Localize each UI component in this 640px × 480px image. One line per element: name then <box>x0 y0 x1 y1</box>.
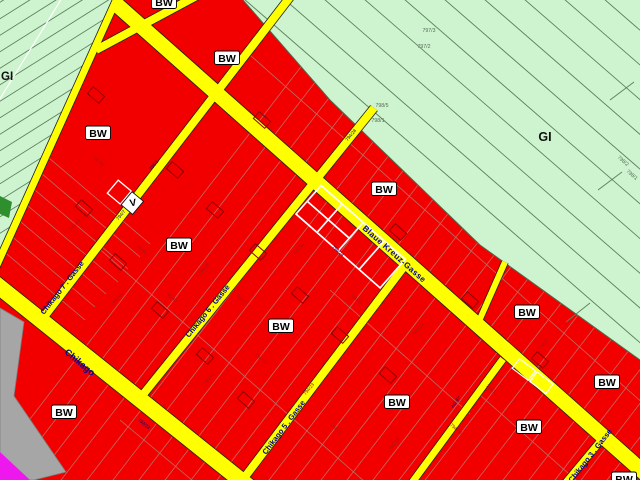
parcel-number: 797/3 <box>423 28 436 34</box>
bw-zone-label: BW <box>52 405 77 419</box>
map-canvas[interactable]: V Blaue Kreuz-Gasse Chikago Chikago 7 . … <box>0 0 640 480</box>
svg-text:BW: BW <box>55 407 73 419</box>
svg-text:BW: BW <box>388 397 406 409</box>
svg-text:BW: BW <box>155 0 173 9</box>
bw-zone-label: BW <box>385 395 410 409</box>
bw-zone-label: BW <box>215 51 240 65</box>
svg-text:BW: BW <box>218 53 236 65</box>
bw-zone-label: BW <box>269 319 294 333</box>
gi-zone-label-left: GI <box>1 71 13 83</box>
svg-text:BW: BW <box>598 377 616 389</box>
map-viewport[interactable]: V Blaue Kreuz-Gasse Chikago Chikago 7 . … <box>0 0 640 480</box>
svg-text:BW: BW <box>375 184 393 196</box>
bw-zone-label: BW <box>152 0 177 9</box>
svg-text:BW: BW <box>272 321 290 333</box>
svg-text:BW: BW <box>170 240 188 252</box>
parcel-number: 797/2 <box>418 44 431 50</box>
parcel-number: 798/5 <box>376 103 389 109</box>
bw-zone-label: BW <box>372 182 397 196</box>
svg-text:BW: BW <box>520 422 538 434</box>
svg-text:BW: BW <box>615 474 633 480</box>
bw-zone-label: BW <box>167 238 192 252</box>
parcel-number: 798/1 <box>372 118 385 124</box>
bw-zone-label: BW <box>595 375 620 389</box>
bw-zone-label: BW <box>517 420 542 434</box>
bw-zone-label: BW <box>86 126 111 140</box>
bw-zone-label: BW <box>515 305 540 319</box>
svg-text:BW: BW <box>89 128 107 140</box>
gi-zone-label: GI <box>538 130 551 144</box>
svg-text:BW: BW <box>518 307 536 319</box>
bw-zone-label: BW <box>612 472 637 480</box>
